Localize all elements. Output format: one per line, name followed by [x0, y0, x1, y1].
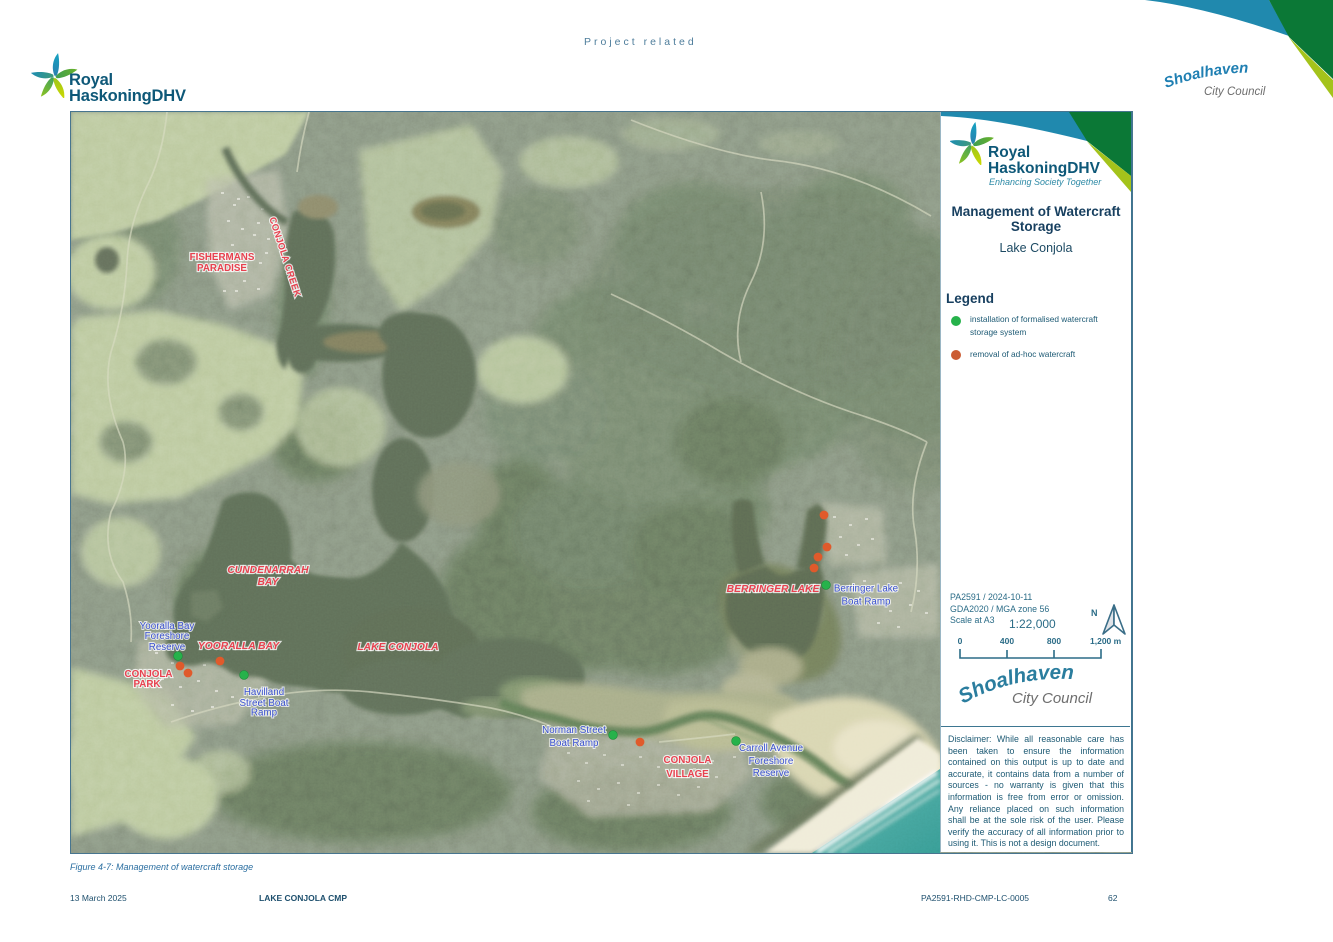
svg-text:FISHERMANS: FISHERMANS [190, 252, 255, 263]
svg-text:City Council: City Council [1204, 86, 1266, 98]
svg-text:City Council: City Council [1012, 690, 1093, 707]
svg-text:Norman Street: Norman Street [542, 725, 606, 736]
svg-text:Boat Ramp: Boat Ramp [549, 738, 599, 749]
svg-text:PARADISE: PARADISE [197, 263, 247, 274]
svg-text:1,200 m: 1,200 m [1090, 636, 1122, 646]
svg-text:Boat Ramp: Boat Ramp [841, 597, 891, 608]
svg-text:CUNDENARRAH: CUNDENARRAH [227, 565, 309, 576]
svg-text:CONJOLA: CONJOLA [664, 755, 712, 766]
svg-text:800: 800 [1047, 636, 1061, 646]
svg-text:YOORALLA BAY: YOORALLA BAY [198, 641, 280, 652]
svg-text:Foreshore: Foreshore [145, 631, 190, 642]
svg-text:BERRINGER LAKE: BERRINGER LAKE [727, 584, 821, 595]
svg-text:BAY: BAY [258, 577, 280, 588]
svg-text:Reserve: Reserve [753, 768, 790, 779]
svg-text:LAKE CONJOLA: LAKE CONJOLA [357, 642, 438, 653]
svg-text:Ramp: Ramp [251, 708, 278, 719]
svg-text:PARK: PARK [133, 679, 160, 690]
svg-text:Havilland: Havilland [244, 687, 284, 698]
svg-text:Reserve: Reserve [149, 642, 186, 653]
svg-text:Berringer Lake: Berringer Lake [834, 584, 899, 595]
svg-text:Carroll Avenue: Carroll Avenue [739, 743, 804, 754]
svg-text:400: 400 [1000, 636, 1014, 646]
svg-text:Foreshore: Foreshore [749, 756, 794, 767]
svg-text:VILLAGE: VILLAGE [666, 769, 709, 780]
svg-text:0: 0 [958, 636, 963, 646]
